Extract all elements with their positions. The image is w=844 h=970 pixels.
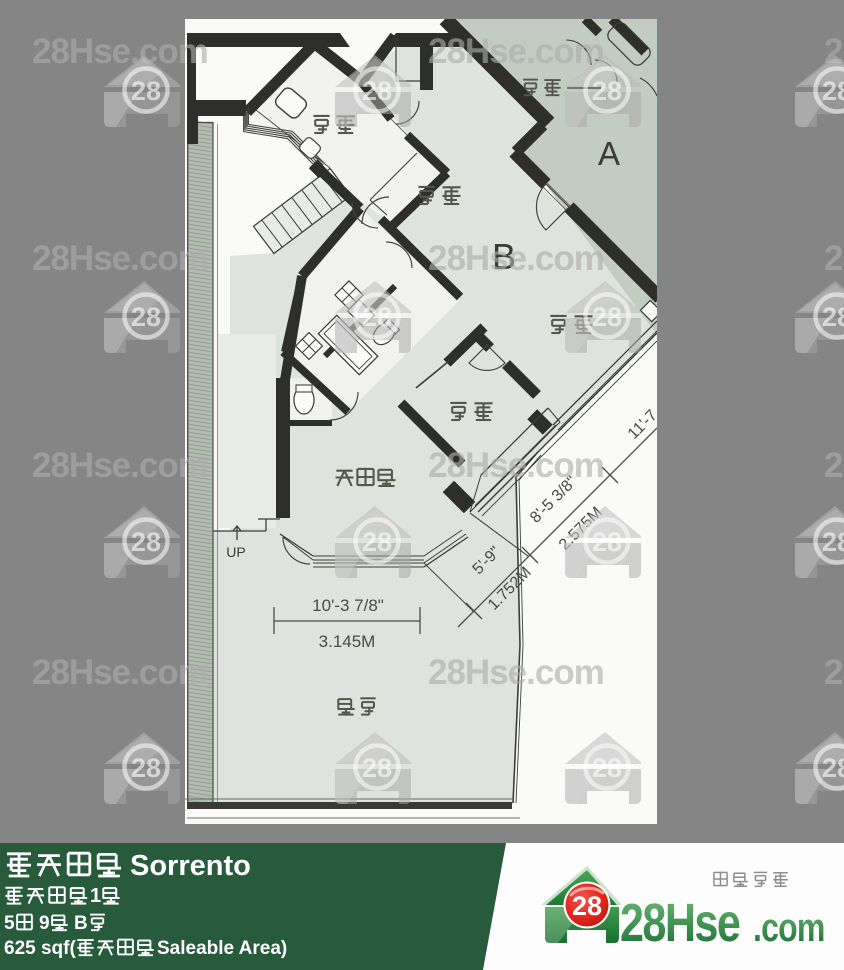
svg-text:28: 28 xyxy=(131,76,161,106)
svg-text:3.145M: 3.145M xyxy=(319,632,376,651)
svg-text:5: 5 xyxy=(4,913,15,934)
svg-text:28Hse.com: 28Hse.com xyxy=(32,239,208,278)
svg-text:28Hse: 28Hse xyxy=(620,894,740,954)
svg-text:28: 28 xyxy=(131,302,161,332)
svg-text:28Hse.com: 28Hse.com xyxy=(32,446,208,485)
svg-text:28Hse.com: 28Hse.com xyxy=(32,653,208,692)
svg-text:.com: .com xyxy=(753,905,824,950)
svg-text:28: 28 xyxy=(822,76,844,106)
svg-text:1: 1 xyxy=(90,885,101,907)
svg-text:Saleable Area): Saleable Area) xyxy=(157,938,287,959)
svg-text:28: 28 xyxy=(822,753,844,783)
svg-text:625 sqf(: 625 sqf( xyxy=(4,938,76,959)
svg-text:28: 28 xyxy=(592,302,622,332)
svg-text:28Hse.com: 28Hse.com xyxy=(428,239,604,278)
svg-text:28Hse.com: 28Hse.com xyxy=(428,653,604,692)
svg-text:28: 28 xyxy=(822,527,844,557)
svg-text:28: 28 xyxy=(362,302,392,332)
svg-text:28: 28 xyxy=(362,527,392,557)
svg-text:28Hse.com: 28Hse.com xyxy=(824,653,844,692)
svg-text:28: 28 xyxy=(572,891,602,921)
svg-text:28: 28 xyxy=(592,527,622,557)
svg-text:28: 28 xyxy=(592,753,622,783)
svg-text:28: 28 xyxy=(362,76,392,106)
svg-text:10'-3 7/8": 10'-3 7/8" xyxy=(312,596,384,615)
svg-text:28Hse.com: 28Hse.com xyxy=(824,239,844,278)
svg-text:28: 28 xyxy=(592,76,622,106)
svg-text:A: A xyxy=(598,135,620,172)
svg-text:B: B xyxy=(74,913,88,934)
svg-text:28: 28 xyxy=(822,302,844,332)
svg-text:28: 28 xyxy=(131,753,161,783)
svg-text:28Hse.com: 28Hse.com xyxy=(32,32,208,71)
svg-text:28Hse.com: 28Hse.com xyxy=(824,446,844,485)
svg-text:28: 28 xyxy=(131,527,161,557)
svg-text:9: 9 xyxy=(39,913,50,934)
svg-text:UP: UP xyxy=(226,544,245,560)
svg-text:28Hse.com: 28Hse.com xyxy=(428,32,604,71)
svg-text:Sorrento: Sorrento xyxy=(130,850,251,882)
svg-text:28Hse.com: 28Hse.com xyxy=(428,446,604,485)
svg-text:28: 28 xyxy=(362,753,392,783)
